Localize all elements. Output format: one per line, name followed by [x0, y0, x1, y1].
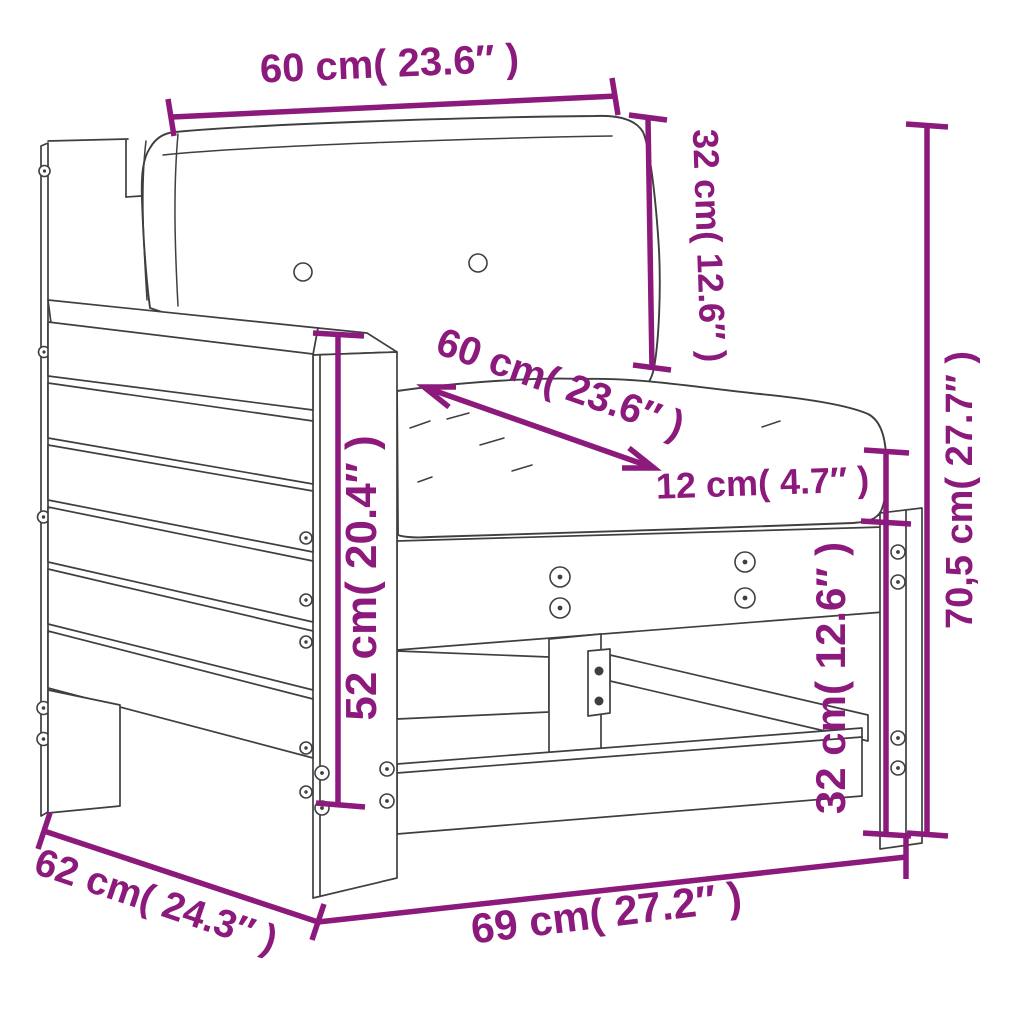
side-rail: [397, 651, 549, 719]
screw: [595, 667, 604, 676]
armrest-slats: [48, 322, 313, 758]
dim-overall-width: 69 cm( 27.2″ ): [318, 838, 906, 953]
cushion-button: [294, 263, 312, 281]
dimension-label-seat-cushion-thickness: 12 cm( 4.7″ ): [655, 458, 870, 506]
dimension-label-seat-frame-height: 32 cm( 12.6″ ): [807, 542, 854, 814]
dimension-label-armrest-height: 52 cm( 20.4″ ): [337, 435, 386, 720]
dim-overall-depth: 62 cm( 24.3″ ): [29, 813, 324, 962]
sofa-dimension-drawing: 60 cm( 23.6″ ) 32 cm( 12.6″ ) 60 cm( 23.…: [0, 0, 1024, 1024]
dimension-label-overall-depth: 62 cm( 24.3″ ): [29, 841, 282, 962]
screw: [595, 697, 604, 706]
dimension-label-overall-height: 70,5 cm( 27.7″ ): [939, 351, 981, 629]
brace-bracket: [588, 649, 610, 716]
cushion-button: [469, 254, 487, 272]
dimension-label-back-cushion-width: 60 cm( 23.6″ ): [259, 36, 520, 91]
front-bottom-rail: [397, 728, 862, 834]
armrest-foot: [48, 690, 120, 813]
dimension-label-overall-width: 69 cm( 27.2″ ): [468, 873, 744, 953]
dimension-label-back-cushion-height: 32 cm( 12.6″ ): [685, 128, 734, 363]
product-dimension-diagram: 60 cm( 23.6″ ) 32 cm( 12.6″ ) 60 cm( 23.…: [0, 0, 1024, 1024]
